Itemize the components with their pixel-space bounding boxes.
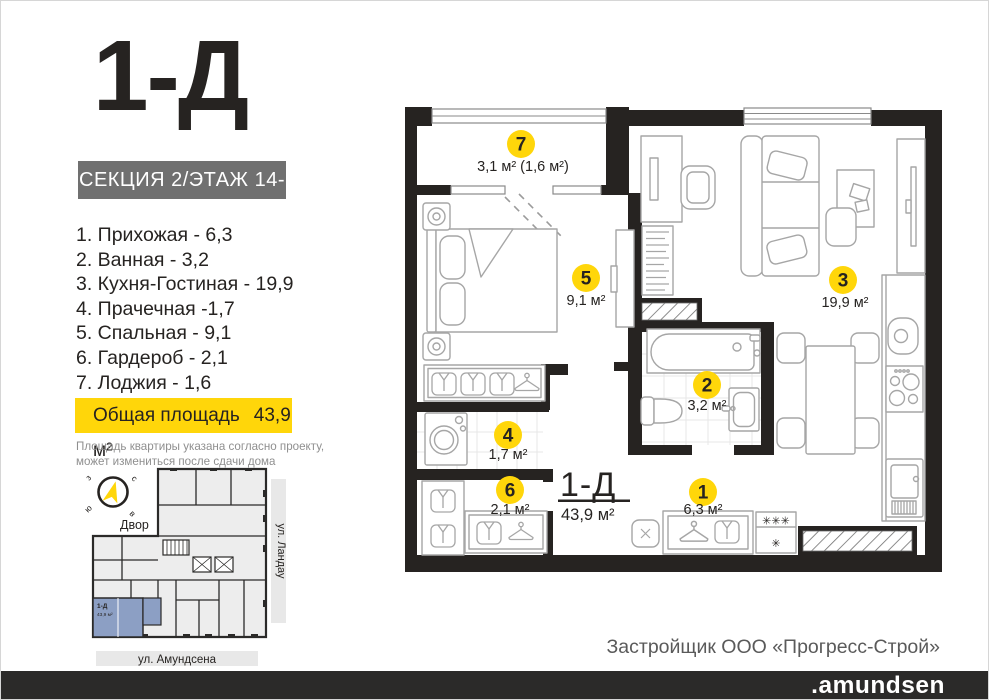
living-window (744, 108, 871, 124)
utility-shaft (637, 298, 702, 325)
dining-set (777, 333, 879, 454)
bookshelf (642, 226, 673, 295)
mini-unit-label: 1-Д (97, 603, 108, 610)
room-marker-6: 6 2,1 м² (491, 476, 530, 518)
courtyard-label: Двор (120, 518, 149, 532)
svg-text:7: 7 (516, 135, 527, 156)
apartment-floor-plan: ✳✳✳ ✳ 7 3,1 м² (1,6 м²) 5 9,1 м² 3 19,9 … (400, 95, 950, 580)
total-area-label: Общая площадь (93, 405, 240, 426)
room-legend-item: 4. Прачечная -1,7 (76, 297, 294, 322)
bed (427, 229, 557, 332)
balcony-door-window (451, 186, 505, 194)
brand-logo: .amundsen (811, 671, 945, 700)
computer-desk (826, 170, 874, 246)
wardrobe-cabinet (422, 481, 464, 555)
entry-mat (798, 526, 917, 556)
svg-text:3,2 м²: 3,2 м² (688, 398, 727, 414)
compass-south: ю (82, 502, 94, 514)
kitchen-sink (888, 318, 918, 354)
room-legend-list: 1. Прихожая - 6,3 2. Ванная - 3,2 3. Кух… (76, 223, 294, 395)
freezer-cabinet: ✳✳✳ ✳ (756, 512, 796, 553)
work-desk (641, 136, 715, 222)
disclaimer-line: Площадь квартиры указана согласно проект… (76, 440, 324, 455)
room-marker-4: 4 1,7 м² (489, 421, 528, 463)
room-legend-item: 6. Гардероб - 2,1 (76, 346, 294, 371)
svg-text:4: 4 (503, 426, 514, 447)
pouf (632, 520, 659, 547)
plan-unit-label: 1-Д 43,9 м² (558, 466, 630, 524)
svg-text:1: 1 (698, 483, 709, 504)
balcony-door-window (553, 186, 601, 194)
washing-machine (425, 413, 467, 465)
room-legend-item: 1. Прихожая - 6,3 (76, 223, 294, 248)
nightstand (423, 333, 450, 360)
svg-text:2,1 м²: 2,1 м² (491, 502, 530, 518)
sofa (741, 136, 819, 276)
plan-unit-code: 1-Д (560, 466, 616, 504)
apartment-title: 1-Д (57, 24, 283, 129)
svg-text:2: 2 (702, 376, 713, 397)
compass-west: з (83, 473, 93, 483)
developer-credit: Застройщик ООО «Прогресс-Строй» (560, 636, 940, 659)
svg-text:9,1 м²: 9,1 м² (567, 293, 606, 309)
room-marker-7: 7 3,1 м² (1,6 м²) (477, 130, 569, 175)
fridge (886, 459, 923, 517)
svg-text:6,3 м²: 6,3 м² (684, 502, 723, 518)
section-floor-badge: СЕКЦИЯ 2/ЭТАЖ 14-15 (78, 161, 286, 199)
room-legend-item: 3. Кухня-Гостиная - 19,9 (76, 272, 294, 297)
compass-icon: з с ю в (82, 473, 140, 519)
street-label-amundsen: ул. Амундсена (138, 654, 217, 666)
room-marker-3: 3 19,9 м² (821, 266, 868, 311)
room-marker-2: 2 3,2 м² (688, 371, 727, 414)
room-marker-5: 5 9,1 м² (567, 264, 606, 309)
room-legend-item: 7. Лоджия - 1,6 (76, 371, 294, 396)
toilet (641, 397, 682, 425)
room-legend-item: 2. Ванная - 3,2 (76, 248, 294, 273)
svg-text:3: 3 (838, 271, 849, 292)
stove (886, 366, 923, 412)
freezer-mark-bottom: ✳ (771, 538, 780, 550)
svg-text:5: 5 (581, 269, 592, 290)
mini-floor-map: ул. Ландау ул. Амундсена з с ю в Двор (70, 462, 305, 674)
room-marker-1: 1 6,3 м² (684, 478, 723, 518)
footer-bar: .amundsen (0, 671, 989, 700)
mini-unit-area: 43,9 м² (97, 612, 113, 618)
plan-unit-area: 43,9 м² (561, 506, 615, 524)
bedroom-closet (424, 365, 545, 401)
bathroom-sink (722, 388, 759, 431)
bedroom-tv-panel (611, 230, 634, 327)
room-legend-item: 5. Спальная - 9,1 (76, 321, 294, 346)
svg-text:3,1 м² (1,6 м²): 3,1 м² (1,6 м²) (477, 159, 569, 175)
svg-text:19,9 м²: 19,9 м² (821, 295, 868, 311)
tv-panel (897, 139, 925, 273)
total-area-badge: Общая площадь43,9 м² (75, 398, 292, 433)
freezer-mark-top: ✳✳✳ (762, 516, 790, 528)
nightstand (423, 203, 450, 230)
compass-north: с (130, 473, 141, 484)
svg-text:1,7 м²: 1,7 м² (489, 447, 528, 463)
bathtub (647, 329, 760, 373)
street-label-landau: ул. Ландау (275, 523, 287, 579)
svg-text:6: 6 (505, 481, 516, 502)
